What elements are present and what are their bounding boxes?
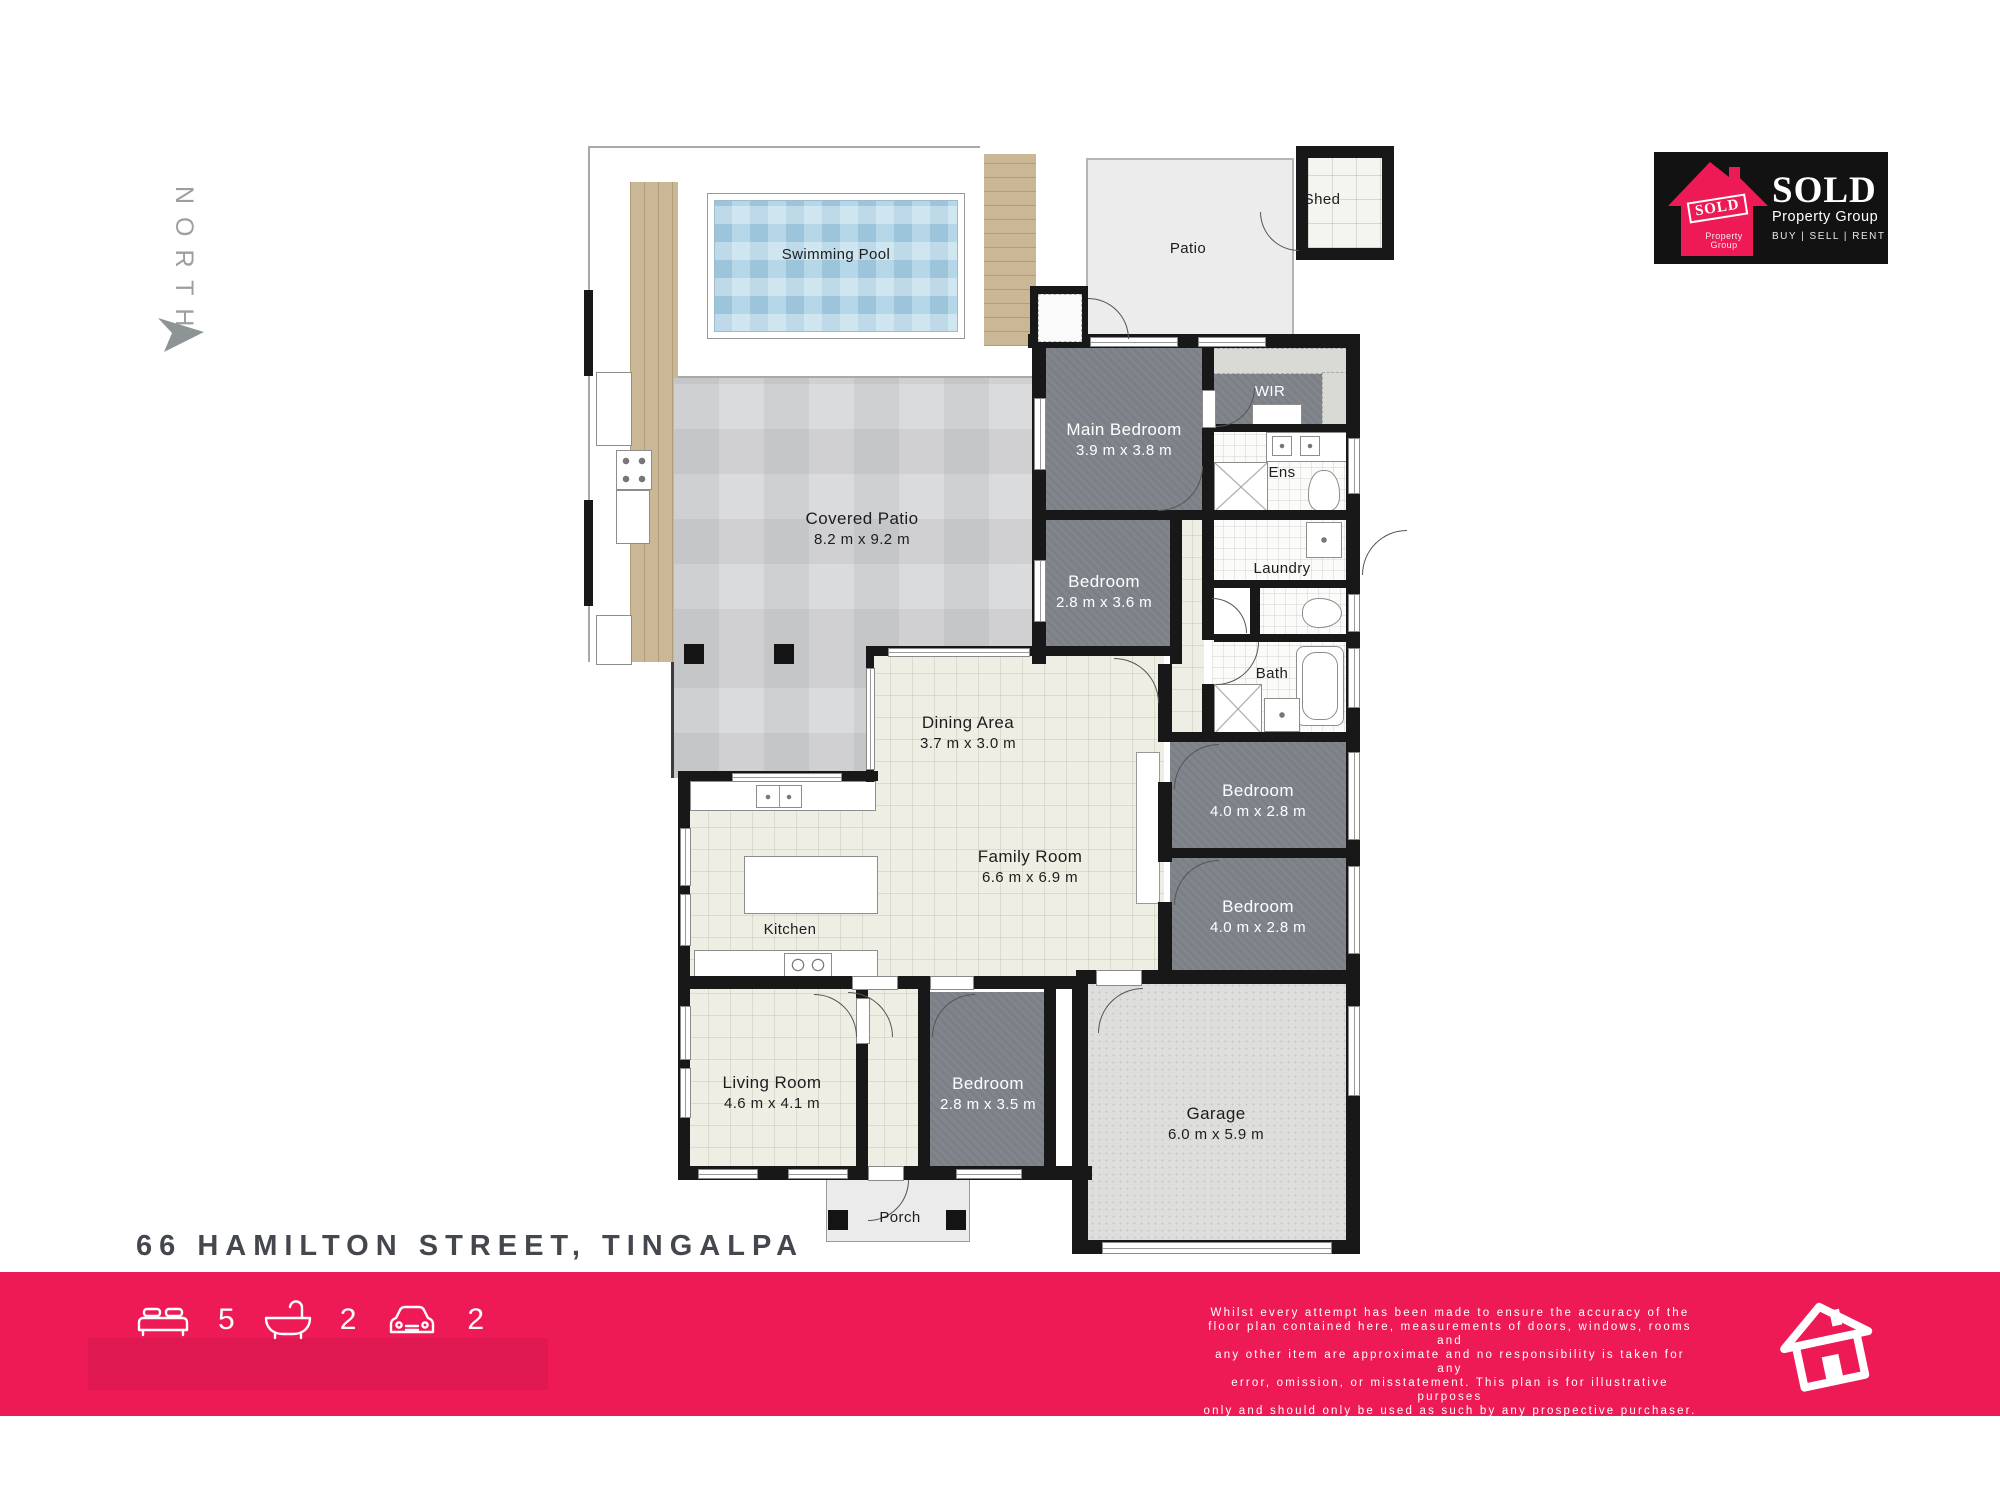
wall [1202, 580, 1360, 588]
wall [1158, 664, 1172, 742]
floorplan-page: NORTH Swimming Pool Patio Shed [0, 0, 2000, 1500]
room-label-kitchen: Kitchen [764, 919, 817, 941]
patio-post [684, 644, 704, 664]
room-label-porch: Porch [879, 1207, 920, 1229]
toilet [1308, 470, 1340, 512]
room-label-patio: Patio [1170, 238, 1206, 260]
retaining-wall [584, 500, 593, 606]
window [1034, 560, 1046, 622]
address-title: 66 HAMILTON STREET, TINGALPA [136, 1230, 804, 1263]
logo-tagline: BUY | SELL | RENT [1772, 231, 1886, 242]
window [956, 1169, 1022, 1179]
wall [1214, 424, 1346, 432]
shower [1214, 462, 1268, 512]
bbq-burners [616, 450, 652, 490]
door-arc [1212, 598, 1247, 633]
vestibule-floor [1038, 294, 1082, 342]
car-icon [383, 1299, 441, 1341]
window [698, 1169, 758, 1179]
logo-house-icon: SOLD Property Group [1664, 158, 1772, 258]
kitchen-island [744, 856, 878, 914]
window [788, 1169, 848, 1179]
window [1198, 337, 1266, 347]
outdoor-counter [596, 372, 632, 446]
window [1348, 1006, 1360, 1096]
room-label-covered-patio: Covered Patio8.2 m x 9.2 m [806, 508, 919, 550]
logo-name-sub: Property Group [1772, 209, 1886, 225]
wall [1044, 989, 1056, 1166]
agency-logo: SOLD Property Group SOLD Property Group … [1654, 152, 1888, 264]
room-label-bedroom-s: Bedroom2.8 m x 3.5 m [940, 1073, 1036, 1115]
pool-fence-top [588, 146, 980, 148]
window [680, 1068, 691, 1118]
window [1348, 438, 1360, 494]
wall [918, 989, 930, 1166]
property-stats: 5 2 2 [134, 1298, 485, 1342]
wall [1032, 510, 1360, 520]
room-label-bedroom-e2: Bedroom4.0 m x 2.8 m [1210, 896, 1306, 938]
footer-bar: 5 2 2 Whilst every attempt has been made… [0, 1272, 2000, 1416]
bathtub-inner [1302, 652, 1338, 720]
window [1348, 752, 1360, 840]
room-label-bath: Bath [1256, 663, 1288, 685]
wir-shelf [1322, 372, 1348, 428]
bed-icon [134, 1299, 192, 1341]
ens-sink [1272, 436, 1292, 456]
room-label-bedroom-e1: Bedroom4.0 m x 2.8 m [1210, 780, 1306, 822]
door-gap [852, 976, 898, 990]
room-label-living: Living Room4.6 m x 4.1 m [723, 1072, 822, 1114]
door-gap [1202, 390, 1216, 428]
side-deck [984, 154, 1036, 346]
family-sofa [1136, 752, 1160, 904]
wall [1158, 848, 1360, 858]
window [1348, 866, 1360, 954]
porch-post [946, 1210, 966, 1230]
house-icon [1772, 1292, 1882, 1396]
room-label-laundry: Laundry [1253, 558, 1310, 580]
bath-icon [262, 1298, 314, 1342]
shower [1214, 684, 1262, 734]
logo-stamp-sub: Property Group [1704, 232, 1744, 250]
window [732, 773, 842, 782]
laundry-sink [1306, 522, 1342, 558]
north-arrow-icon [158, 316, 206, 354]
window [680, 828, 691, 886]
room-label-main-bedroom: Main Bedroom3.9 m x 3.8 m [1066, 419, 1181, 461]
door-gap [1096, 970, 1142, 986]
room-label-bedroom-mid: Bedroom2.8 m x 3.6 m [1056, 571, 1152, 613]
wall [1170, 510, 1182, 664]
bath-sink [1264, 698, 1300, 732]
porch-post [828, 1210, 848, 1230]
outdoor-cabinet [616, 490, 650, 544]
beds-count: 5 [218, 1303, 236, 1337]
cars-count: 2 [467, 1303, 485, 1337]
sliding-door [866, 668, 875, 770]
wall [1158, 732, 1360, 742]
kitchen-sink [756, 785, 802, 808]
room-label-family: Family Room6.6 m x 6.9 m [978, 846, 1083, 888]
window [1034, 398, 1046, 470]
garage-door [1102, 1242, 1332, 1254]
room-label-garage: Garage6.0 m x 5.9 m [1168, 1103, 1264, 1145]
room-label-dining: Dining Area3.7 m x 3.0 m [920, 712, 1016, 754]
footer-shade [88, 1338, 548, 1390]
room-label-ens: Ens [1268, 462, 1295, 484]
wall [1072, 984, 1088, 1252]
retaining-wall [584, 290, 593, 376]
wall [1214, 634, 1346, 642]
door-gap [868, 1166, 904, 1181]
wir-shelf [1212, 348, 1348, 374]
window [888, 648, 1030, 657]
pool-deck [630, 182, 678, 662]
room-label-shed: Shed [1304, 189, 1341, 211]
baths-count: 2 [340, 1303, 358, 1337]
patio-post [774, 644, 794, 664]
window [680, 1006, 691, 1060]
logo-name: SOLD [1772, 174, 1886, 208]
stove [784, 953, 832, 977]
ens-sink [1300, 436, 1320, 456]
window [1348, 594, 1360, 632]
covered-patio-floor [674, 654, 870, 778]
door-arc [1362, 530, 1407, 575]
wir-drawers [1252, 404, 1302, 426]
disclaimer-text: Whilst every attempt has been made to en… [1200, 1306, 1700, 1418]
room-label-swimming-pool: Swimming Pool [782, 244, 891, 266]
swimming-pool [708, 194, 964, 338]
wall [1250, 588, 1260, 638]
door-gap [930, 976, 974, 990]
room-label-wir: WIR [1255, 381, 1285, 403]
window [1348, 648, 1360, 708]
window [680, 894, 691, 946]
outdoor-counter [596, 615, 632, 665]
